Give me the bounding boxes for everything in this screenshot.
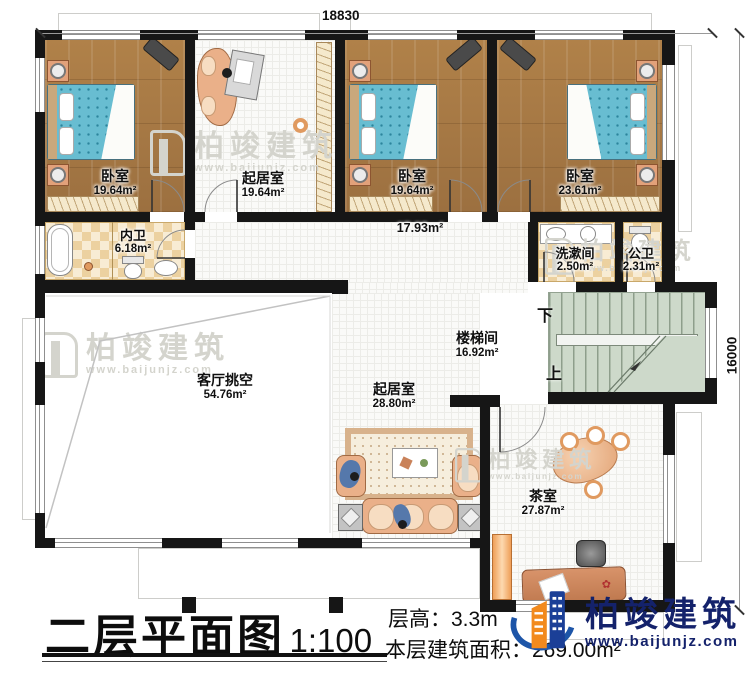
sink	[580, 226, 596, 242]
room-label-stairwell: 楼梯间 16.92m²	[456, 330, 499, 360]
wall-tearoom-left	[480, 404, 490, 604]
door-opening-bedroom1	[150, 212, 184, 222]
room-label-bedroom3: 卧室 23.61m²	[559, 168, 602, 198]
room-name: 茶室	[522, 488, 565, 505]
room-name: 公卫	[623, 246, 659, 261]
nightstand	[349, 164, 371, 186]
dimension-line-top	[40, 33, 713, 34]
wall-divider-bedroom23	[487, 30, 497, 222]
armchair-right	[452, 455, 482, 497]
room-area: 2.50m²	[555, 261, 594, 275]
bed-headboard	[647, 85, 656, 159]
room-area: 19.64m²	[391, 185, 434, 199]
room-name: 卧室	[391, 168, 434, 185]
door-opening-bedroom2	[448, 212, 482, 222]
lamp-icon	[50, 167, 66, 183]
room-name: 楼梯间	[456, 330, 499, 347]
terrace-outline-right	[676, 412, 702, 562]
nightstand	[47, 164, 69, 186]
wardrobe	[47, 196, 139, 212]
room-area: 23.61m²	[559, 185, 602, 199]
door-opening-washroom	[544, 282, 576, 292]
window	[35, 318, 45, 362]
corridor-floor-filler	[348, 282, 528, 293]
brand-logo-icon	[505, 583, 581, 665]
room-name: 客厅挑空	[197, 372, 253, 389]
lamp-icon	[50, 63, 66, 79]
nightstand	[636, 164, 658, 186]
room-label-washroom: 洗漱间 2.50m²	[555, 246, 594, 275]
wall-stairs-bottom	[548, 392, 717, 404]
window	[535, 30, 623, 40]
room-name: 起居室	[373, 381, 416, 398]
room-area: 27.87m²	[522, 505, 565, 519]
window	[705, 308, 717, 378]
window	[35, 405, 45, 513]
brand-url: www.baijunjz.com	[585, 633, 741, 650]
eave-outline-left	[22, 318, 36, 520]
door-opening-bedroom3	[498, 212, 530, 222]
porch-outline-bottom	[138, 548, 480, 599]
room-label-lounge-main: 起居室 28.80m²	[373, 381, 416, 411]
room-area: 6.18m²	[115, 243, 151, 257]
bed-headboard	[48, 85, 57, 159]
window	[55, 538, 162, 548]
person-head	[350, 472, 359, 481]
room-label-lounge-top: 起居室 19.64m²	[242, 170, 285, 200]
bed-headboard	[350, 85, 359, 159]
room-name: 洗漱间	[555, 246, 594, 261]
sofa-cushion	[201, 96, 216, 116]
wall-void-top	[35, 280, 348, 293]
tea-stool	[560, 432, 579, 451]
title-underline-thin	[42, 661, 387, 662]
room-name: 卧室	[559, 168, 602, 185]
brand-name: 柏竣建筑	[585, 598, 741, 634]
room-area: 16.92m²	[456, 347, 499, 361]
void-floor	[45, 293, 332, 538]
nightstand	[349, 60, 371, 82]
desk-paper	[233, 58, 255, 85]
pillow	[59, 127, 74, 155]
wall-divider-bedroom1	[185, 30, 195, 222]
pillow	[630, 127, 645, 155]
tea-stool	[584, 480, 603, 499]
window	[198, 30, 305, 40]
dimension-top-value: 18830	[322, 8, 360, 23]
pillow	[361, 127, 376, 155]
toilet-bowl	[124, 263, 142, 279]
stair-down-label: 下	[537, 302, 553, 326]
shower-partition	[112, 222, 113, 280]
nightstand	[47, 60, 69, 82]
room-name: 起居室	[242, 170, 285, 187]
person-head	[398, 520, 407, 529]
floor-plan-page: { "dimensions": { "top": "18830", "right…	[0, 0, 750, 675]
dimension-line-right	[739, 33, 740, 611]
duvet	[101, 85, 134, 159]
pillow	[630, 93, 645, 121]
wall-divider-lounge-top	[335, 30, 345, 222]
room-label-void: 客厅挑空 54.76m²	[197, 372, 253, 402]
window	[222, 538, 298, 548]
lamp-icon	[639, 167, 655, 183]
coffee-table	[392, 448, 438, 478]
lamp-icon	[352, 167, 368, 183]
person-head	[222, 68, 232, 78]
sofa-cushion	[457, 464, 479, 492]
brand-logo: 柏竣建筑 www.baijunjz.com	[505, 583, 741, 665]
lamp-icon	[639, 63, 655, 79]
sink	[546, 227, 566, 241]
door-opening-lounge-top	[205, 212, 237, 222]
room-area: 28.80m²	[373, 398, 416, 412]
tea-stool	[586, 426, 605, 445]
window	[662, 65, 675, 160]
stair-up-label: 上	[546, 360, 562, 384]
wall-washroom-left	[528, 222, 538, 282]
table-decor	[399, 456, 412, 469]
sofa-cushion	[428, 504, 454, 530]
desk-chair	[576, 540, 606, 567]
room-label-bedroom1: 卧室 19.64m²	[94, 168, 137, 198]
bed	[567, 84, 657, 160]
sofa-cushion	[368, 504, 394, 530]
pillow	[59, 93, 74, 121]
floor-height-note: 层高：3.3m	[388, 603, 498, 633]
decor-ring	[293, 118, 308, 133]
duvet	[568, 85, 601, 159]
table-decor	[420, 459, 428, 467]
sofa-cushion	[201, 56, 216, 76]
door-opening-innerbath	[185, 230, 195, 258]
window	[362, 538, 470, 548]
wardrobe	[560, 196, 660, 212]
window	[368, 30, 457, 40]
room-name: 卧室	[94, 168, 137, 185]
window	[35, 58, 45, 112]
room-area: 2.31m²	[623, 261, 659, 275]
wardrobe	[316, 42, 332, 212]
duvet	[403, 85, 436, 159]
door-opening-publicbath	[627, 282, 655, 292]
window	[35, 226, 45, 274]
wall-bedrooms-bottom	[45, 212, 662, 222]
bed	[349, 84, 437, 160]
plant-icon	[84, 262, 93, 271]
wardrobe	[349, 196, 433, 212]
eave-outline-right	[678, 45, 692, 232]
sink	[154, 260, 178, 276]
title-underline-thick	[42, 653, 387, 657]
room-area: 54.76m²	[197, 389, 253, 403]
room-label-inner-bath: 内卫 6.18m²	[115, 228, 151, 257]
column	[332, 280, 348, 294]
stair-handrail	[556, 334, 698, 346]
side-table	[338, 504, 363, 531]
room-area: 17.93m²	[397, 221, 444, 236]
room-label-tearoom: 茶室 27.87m²	[522, 488, 565, 518]
bed	[47, 84, 135, 160]
room-name: 内卫	[115, 228, 151, 243]
bathtub	[47, 224, 73, 276]
nightstand	[636, 60, 658, 82]
tea-stool	[611, 432, 630, 451]
window	[663, 455, 675, 543]
room-label-bedroom2: 卧室 19.64m²	[391, 168, 434, 198]
room-area: 19.64m²	[242, 187, 285, 201]
brand-text: 柏竣建筑 www.baijunjz.com	[585, 598, 741, 651]
dimension-right-value: 16000	[725, 336, 740, 376]
room-area: 19.64m²	[94, 185, 137, 199]
room-label-public-bath: 公卫 2.31m²	[623, 246, 659, 275]
window	[62, 30, 140, 40]
wall-lounge-tearoom	[450, 395, 500, 407]
pillow	[361, 93, 376, 121]
lamp-icon	[352, 63, 368, 79]
room-label-corridor: 17.93m²	[397, 221, 444, 236]
